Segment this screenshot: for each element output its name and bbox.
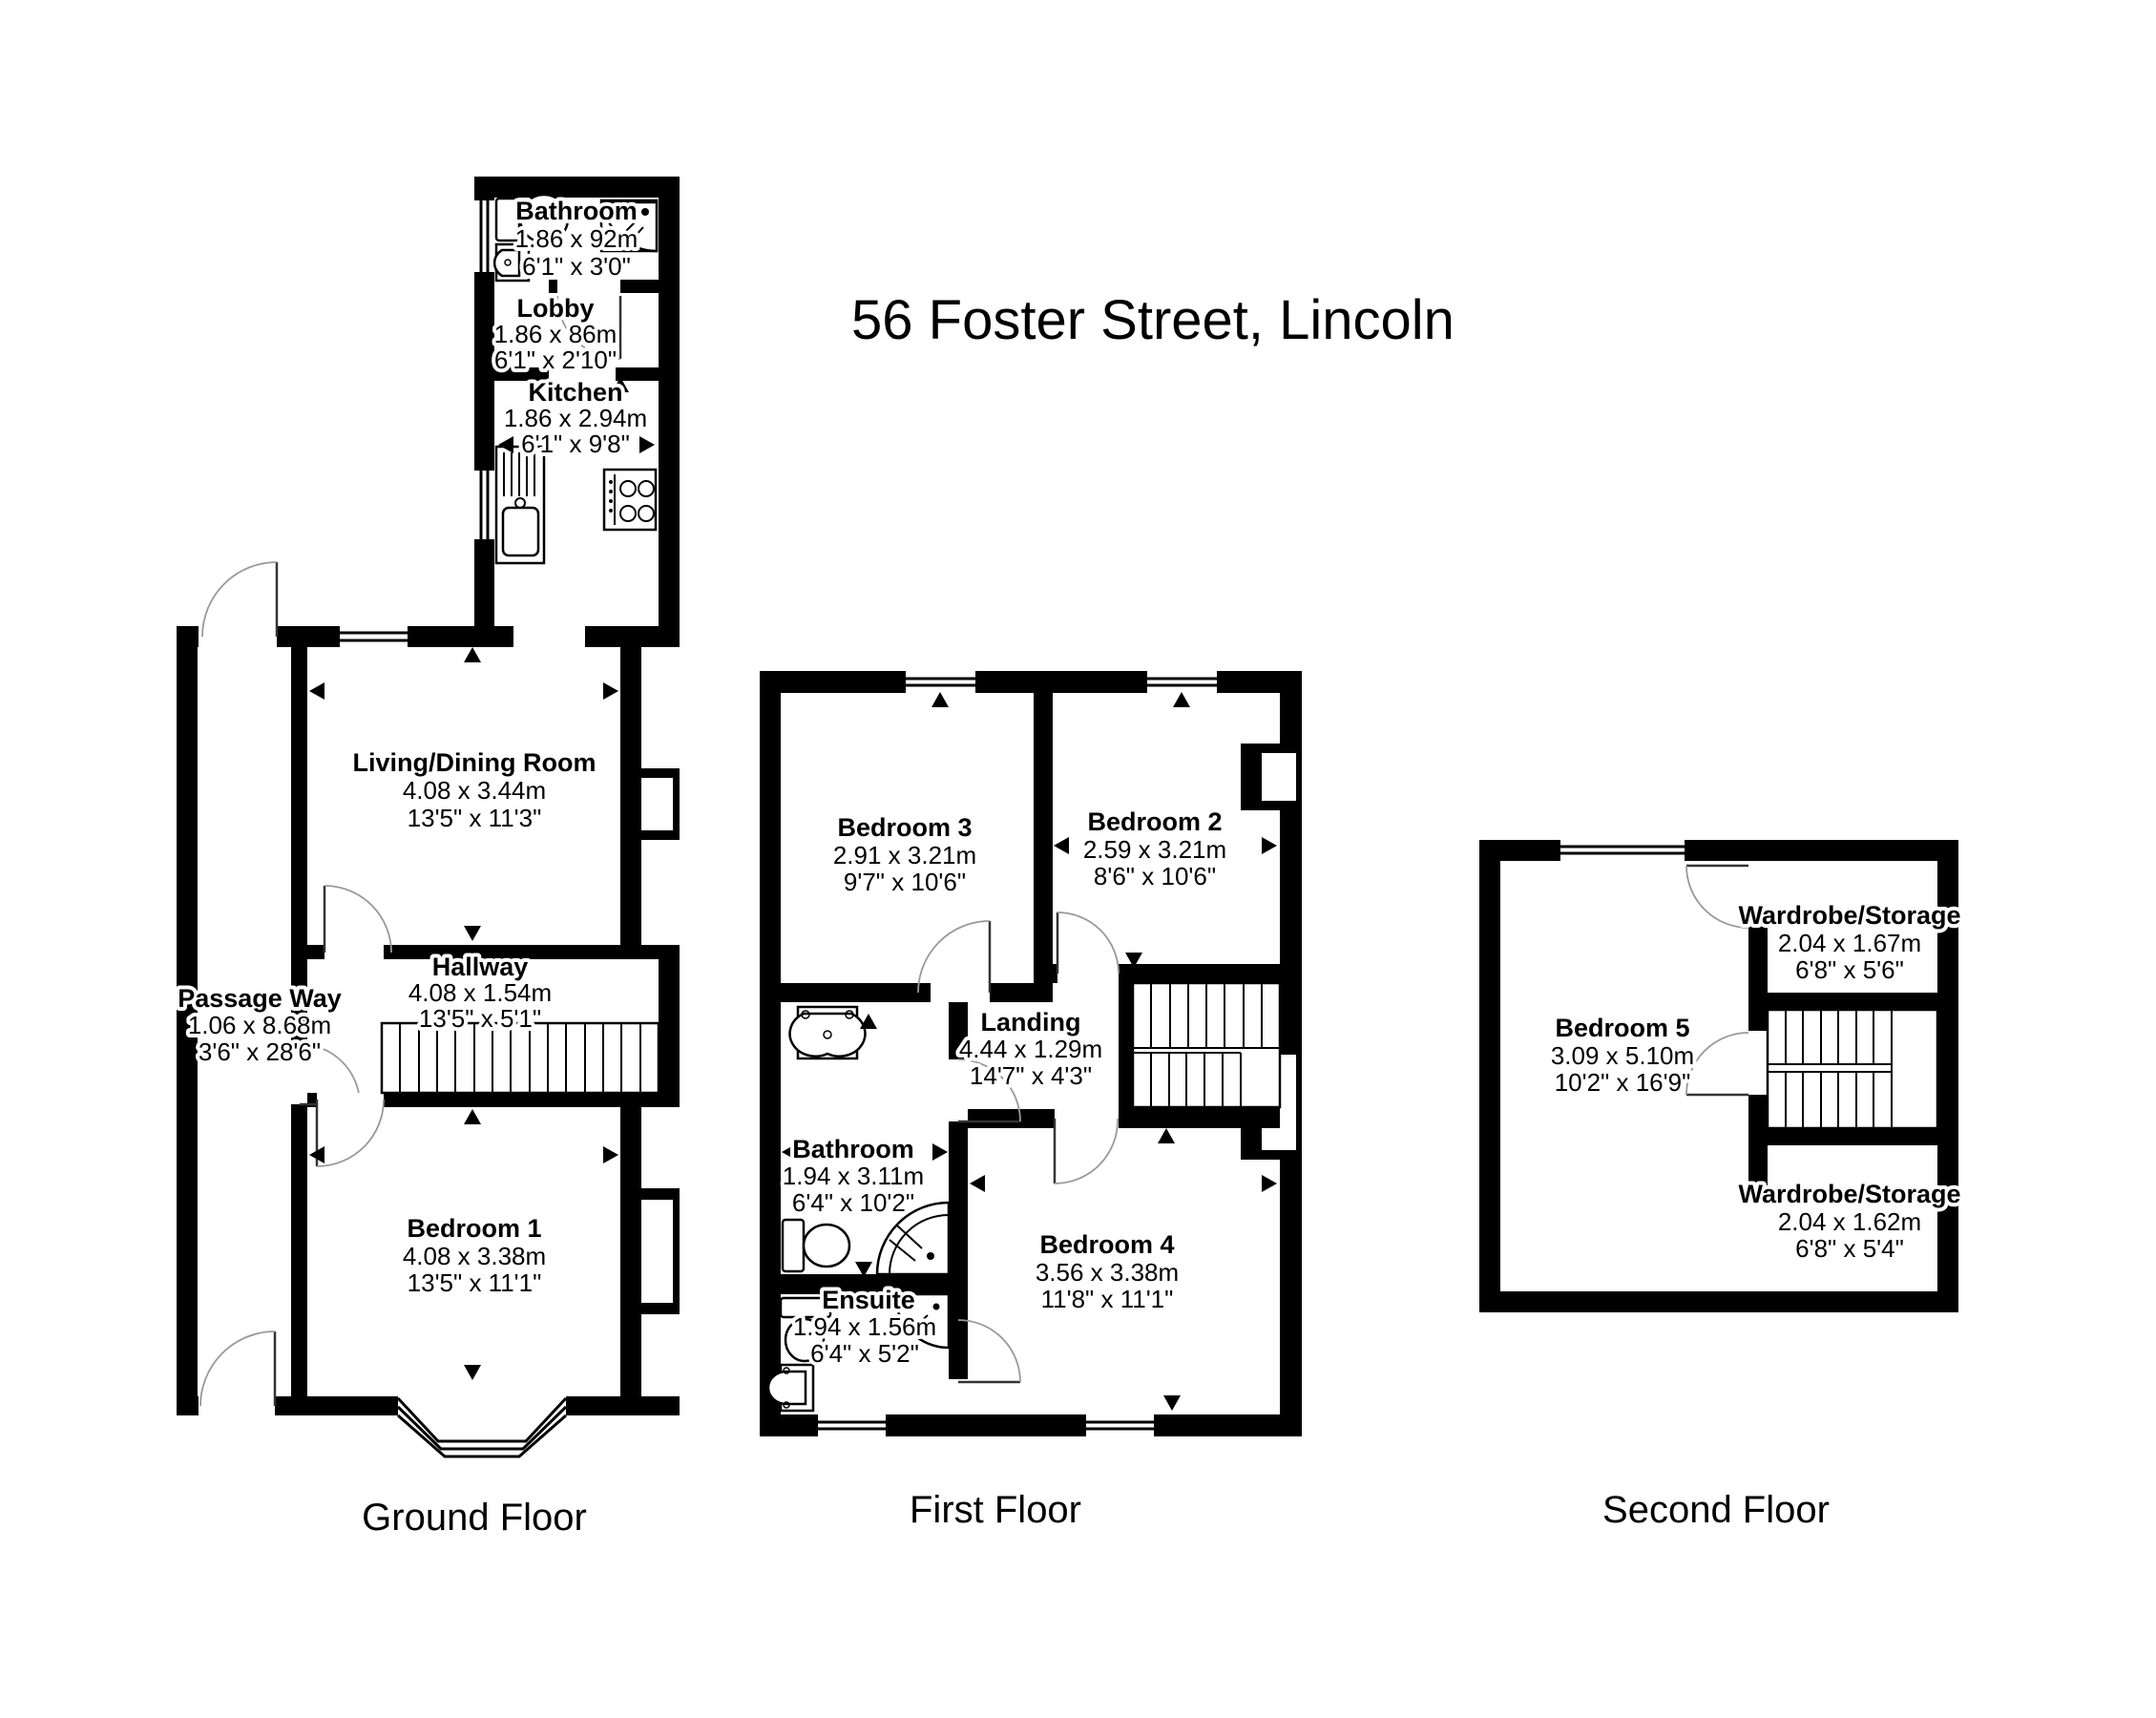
- wall: [1034, 693, 1053, 983]
- room-dim-imperial: 11'8" x 11'1": [1041, 1285, 1174, 1313]
- room-name-label: Hallway: [432, 953, 529, 981]
- room-dim-imperial: 6'1" x 2'10": [494, 346, 617, 374]
- wall: [1748, 1010, 1768, 1031]
- room-dim-imperial: 6'8" x 5'4": [1795, 1234, 1904, 1263]
- door-bedroom1: [317, 1093, 384, 1166]
- hob-icon: [604, 470, 656, 530]
- room-name-label: Bedroom 3: [837, 813, 972, 842]
- second-floor-plan: Wardrobe/Storage 2.04 x 1.67m 6'8" x 5'6…: [1479, 840, 1961, 1531]
- room-dim-metric: 2.04 x 1.62m: [1778, 1207, 1921, 1236]
- wall: [620, 647, 641, 768]
- floor-label-ground: Ground Floor: [362, 1497, 587, 1539]
- room-dim-metric: 2.59 x 3.21m: [1083, 835, 1226, 864]
- room-name-label: Kitchen: [528, 378, 622, 407]
- toilet-icon: [783, 1220, 849, 1271]
- wall: [1748, 923, 1768, 993]
- door-front: [199, 1331, 275, 1415]
- wall: [620, 840, 641, 945]
- window: [1560, 840, 1685, 861]
- bay-opening: [398, 1396, 566, 1415]
- window: [818, 1414, 886, 1436]
- floorplan-page: 56 Foster Street, Lincoln: [0, 0, 2156, 1718]
- room-name-label: Bathroom: [792, 1135, 914, 1163]
- room-dim-metric: 4.08 x 1.54m: [408, 978, 552, 1007]
- wall: [1479, 840, 1958, 861]
- page-title: 56 Foster Street, Lincoln: [851, 289, 1455, 351]
- room-name-label: Passage Way: [178, 984, 342, 1013]
- ground-floor-plan: Bathroom 1.86 x 92m 6'1" x 3'0" Lobby 1.…: [177, 177, 680, 1539]
- door-bedroom4: [1055, 1119, 1118, 1184]
- room-dim-imperial: 13'5" x 11'3": [408, 804, 542, 832]
- room-dim-imperial: 13'5" x 5'1": [419, 1004, 541, 1033]
- room-dim-metric: 1.86 x 2.94m: [504, 404, 647, 432]
- window: [1147, 671, 1217, 693]
- room-dim-metric: 1.86 x 86m: [494, 320, 617, 348]
- wall: [1748, 993, 1937, 1010]
- room-dim-metric: 1.94 x 3.11m: [783, 1162, 924, 1190]
- wall: [949, 1121, 968, 1379]
- room-dim-imperial: 6'4" x 5'2": [810, 1339, 919, 1368]
- room-name-label: Ensuite: [822, 1286, 915, 1314]
- room-name-label: Bedroom 5: [1555, 1014, 1689, 1042]
- wall: [307, 945, 324, 959]
- wall: [620, 1314, 641, 1396]
- wall: [1479, 840, 1500, 1312]
- room-dim-imperial: 3'6" x 28'6": [199, 1037, 321, 1066]
- room-dim-imperial: 13'5" x 11'1": [408, 1268, 542, 1297]
- room-dim-imperial: 8'6" x 10'6": [1094, 862, 1216, 890]
- room-name-label: Bathroom: [515, 197, 638, 225]
- wall: [291, 1104, 307, 1396]
- room-name-label: Bedroom 1: [407, 1214, 541, 1243]
- window: [1086, 1414, 1154, 1436]
- door-opening: [513, 626, 585, 647]
- wall: [760, 671, 781, 1436]
- wall: [760, 671, 1302, 693]
- room-dim-metric: 4.08 x 3.38m: [403, 1242, 546, 1270]
- sink-icon: [790, 1007, 866, 1058]
- stairs: [382, 1023, 659, 1093]
- room-dim-metric: 2.91 x 3.21m: [833, 841, 976, 869]
- wall: [968, 1109, 1055, 1128]
- floorplan-canvas: 56 Foster Street, Lincoln: [0, 0, 2156, 1718]
- room-name-label: Wardrobe/Storage: [1738, 1180, 1960, 1208]
- room-dim-metric: 1.86 x 92m: [515, 224, 638, 253]
- wall: [990, 983, 1053, 1002]
- room-name-label: Lobby: [517, 294, 595, 323]
- room-name-label: Bedroom 4: [1039, 1230, 1174, 1259]
- room-dim-metric: 4.44 x 1.29m: [959, 1035, 1102, 1063]
- wall: [620, 1107, 641, 1188]
- door-opening: [199, 626, 277, 647]
- door-bedroom2: [1057, 912, 1119, 983]
- wall: [659, 177, 680, 647]
- chimney-recess: [1262, 753, 1296, 801]
- wall: [659, 945, 680, 1107]
- wall: [1119, 1107, 1280, 1128]
- room-dim-imperial: 6'1" x 3'0": [522, 252, 631, 281]
- kitchen-sink-icon: [496, 447, 544, 563]
- room-dim-imperial: 6'1" x 9'8": [521, 429, 630, 458]
- room-name-label: Landing: [981, 1008, 1081, 1037]
- door-bedroom3: [918, 921, 990, 993]
- wall: [1748, 1128, 1937, 1145]
- room-dim-imperial: 10'2" x 16'9": [1555, 1068, 1691, 1097]
- room-dim-metric: 1.94 x 1.56m: [793, 1312, 936, 1341]
- room-dim-metric: 4.08 x 3.44m: [403, 776, 546, 805]
- wall: [1119, 964, 1280, 983]
- window: [474, 471, 494, 539]
- door-stairs: [1686, 1033, 1748, 1095]
- room-name-label: Bedroom 2: [1087, 807, 1222, 836]
- room-labels-ground: Bathroom 1.86 x 92m 6'1" x 3'0" Lobby 1.…: [178, 197, 647, 1297]
- door-garden: [202, 562, 277, 637]
- wall: [384, 1093, 680, 1107]
- chimney-recess: [641, 1200, 673, 1303]
- wall: [474, 177, 680, 198]
- wall: [384, 945, 680, 959]
- floor-label-second: Second Floor: [1602, 1489, 1830, 1531]
- room-dim-metric: 3.09 x 5.10m: [1551, 1041, 1694, 1070]
- wall: [781, 983, 931, 1002]
- room-dim-imperial: 6'4" x 10'2": [792, 1188, 914, 1217]
- room-dim-metric: 2.04 x 1.67m: [1778, 929, 1921, 957]
- door-living-room: [324, 886, 391, 959]
- room-dim-metric: 3.56 x 3.38m: [1036, 1258, 1179, 1287]
- room-dim-imperial: 9'7" x 10'6": [844, 868, 966, 896]
- wall: [1119, 983, 1133, 1107]
- stairs: [1768, 1010, 1937, 1128]
- room-dim-metric: 1.06 x 8.68m: [188, 1011, 331, 1039]
- first-floor-plan: Bedroom 3 2.91 x 3.21m 9'7" x 10'6" Bedr…: [760, 671, 1302, 1531]
- wall: [1479, 1291, 1958, 1312]
- stairs: [1133, 983, 1280, 1107]
- window: [906, 671, 975, 693]
- room-dim-imperial: 14'7" x 4'3": [970, 1061, 1092, 1090]
- room-name-label: Living/Dining Room: [353, 748, 597, 777]
- room-dim-imperial: 6'8" x 5'6": [1795, 955, 1904, 984]
- chimney-recess: [641, 778, 673, 830]
- window: [340, 626, 408, 647]
- window: [474, 200, 494, 272]
- room-name-label: Wardrobe/Storage: [1738, 901, 1960, 930]
- floor-label-first: First Floor: [910, 1489, 1081, 1531]
